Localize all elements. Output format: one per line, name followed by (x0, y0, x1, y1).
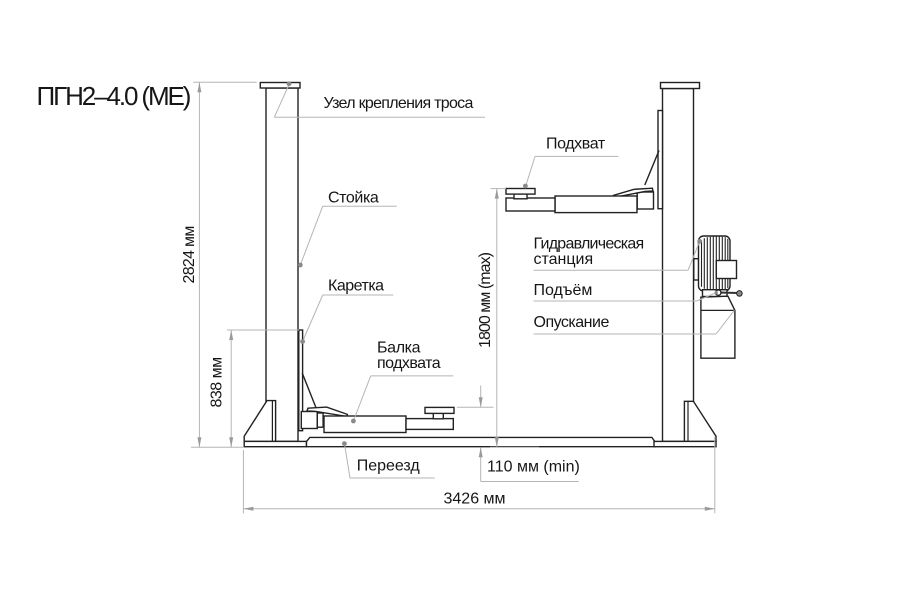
svg-text:3426 мм: 3426 мм (444, 491, 506, 508)
svg-text:ПГН2–4.0 (МЕ): ПГН2–4.0 (МЕ) (37, 81, 191, 111)
svg-text:Балка: Балка (377, 340, 421, 357)
svg-text:станция: станция (534, 251, 594, 268)
svg-text:Переезд: Переезд (357, 458, 421, 475)
svg-text:Подъём: Подъём (534, 282, 593, 299)
svg-text:Гидравлическая: Гидравлическая (534, 236, 644, 253)
svg-text:2824 мм: 2824 мм (181, 226, 198, 283)
svg-text:Стойка: Стойка (328, 190, 379, 207)
svg-text:Подхват: Подхват (546, 135, 606, 152)
svg-text:Опускание: Опускание (534, 314, 610, 331)
svg-text:Узел крепления троса: Узел крепления троса (324, 95, 474, 112)
svg-text:Каретка: Каретка (328, 278, 384, 295)
svg-text:подхвата: подхвата (377, 355, 441, 372)
svg-text:1800 мм (max): 1800 мм (max) (477, 252, 494, 348)
svg-text:110 мм (min): 110 мм (min) (487, 459, 580, 476)
svg-text:838 мм: 838 мм (209, 357, 226, 407)
